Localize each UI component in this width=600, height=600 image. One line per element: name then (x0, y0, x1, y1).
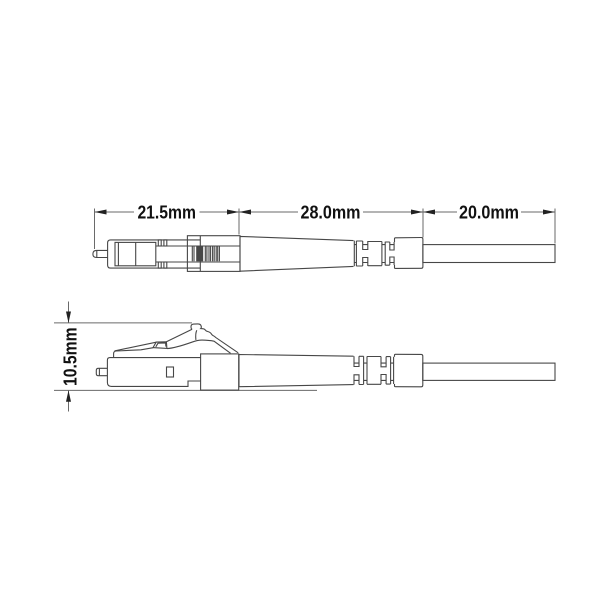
svg-text:28.0mm: 28.0mm (301, 203, 361, 223)
svg-text:21.5mm: 21.5mm (137, 203, 196, 223)
svg-text:20.0mm: 20.0mm (459, 203, 519, 223)
svg-text:10.5mm: 10.5mm (60, 327, 80, 386)
